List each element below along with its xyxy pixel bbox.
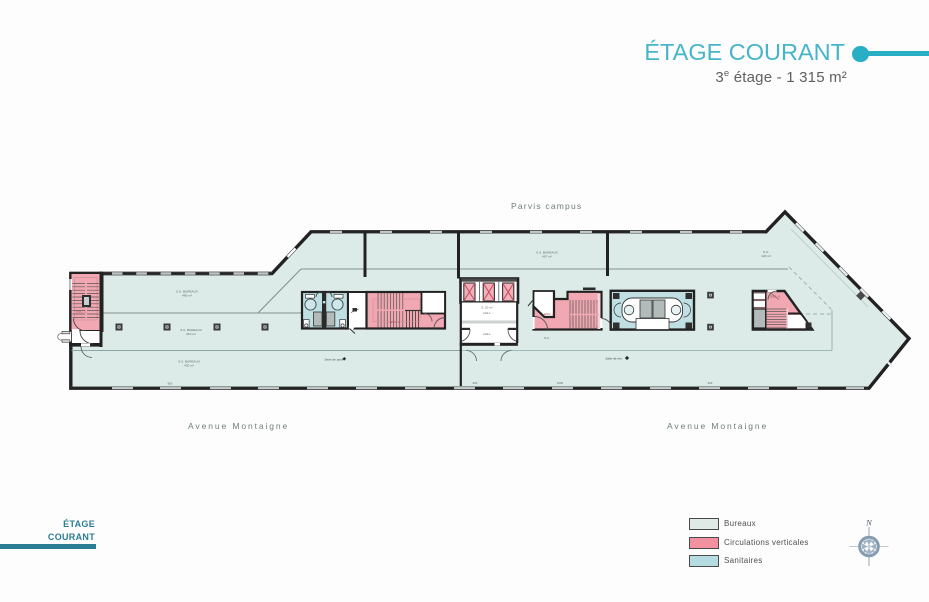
svg-text:ESC. 4: ESC. 4 xyxy=(770,295,780,299)
svg-text:490 m²: 490 m² xyxy=(182,294,192,298)
svg-text:Sens de pose: Sens de pose xyxy=(325,358,344,362)
svg-text:310 m²: 310 m² xyxy=(186,332,196,336)
svg-text:ESC. 2: ESC. 2 xyxy=(390,320,400,324)
svg-text:HALL: HALL xyxy=(483,332,491,336)
svg-text:HALL: HALL xyxy=(483,311,491,315)
svg-text:N: N xyxy=(865,518,873,528)
svg-text:900: 900 xyxy=(708,381,713,385)
svg-text:Salle de réu.: Salle de réu. xyxy=(605,357,623,361)
svg-text:1000: 1000 xyxy=(557,381,564,385)
svg-text:120 m²: 120 m² xyxy=(761,254,771,258)
svg-text:497 m²: 497 m² xyxy=(542,255,552,259)
svg-text:900: 900 xyxy=(168,381,173,385)
svg-text:900: 900 xyxy=(473,381,478,385)
svg-text:ESC. 3: ESC. 3 xyxy=(544,312,554,316)
svg-text:420 m²: 420 m² xyxy=(184,364,194,368)
svg-text:S. 20 m²: S. 20 m² xyxy=(481,306,492,310)
svg-text:S.U.: S.U. xyxy=(544,336,550,340)
svg-text:ESC. 1: ESC. 1 xyxy=(76,310,86,314)
